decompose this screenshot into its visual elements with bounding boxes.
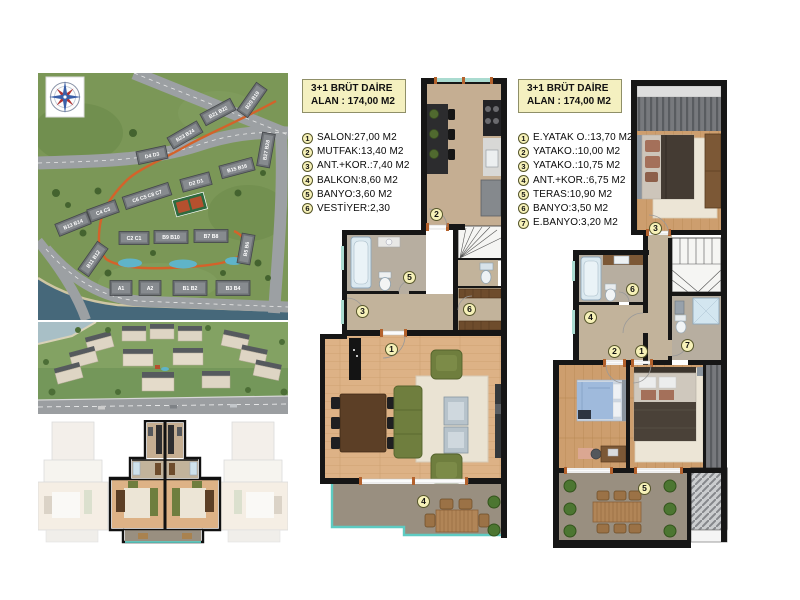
room-marker-balkon: 4 [417, 495, 430, 508]
stairs [458, 226, 503, 260]
room-number-badge: 6 [518, 203, 529, 214]
svg-text:B3 B4: B3 B4 [226, 286, 241, 292]
site-building: B9 B10 [154, 231, 188, 244]
compass-icon [46, 77, 84, 117]
room-marker-yatak2: 2 [608, 345, 621, 358]
floor-plan-b: 1 2 3 4 5 6 7 [548, 58, 733, 550]
room-number-badge: 4 [518, 175, 529, 186]
bedroom2-door [606, 361, 624, 364]
key-plan-svg [38, 420, 288, 545]
room-number-badge: 2 [302, 147, 313, 158]
brochure-page: B20 B19B21 B22B23 B24D4 D3B27 B28B15 B16… [0, 0, 800, 600]
island-plants [430, 110, 439, 159]
site-building: A1 [110, 281, 132, 296]
svg-text:C2 C1: C2 C1 [127, 236, 142, 242]
refrigerator [481, 180, 501, 216]
room-marker-banyo: 5 [403, 271, 416, 284]
room-number-badge: 5 [518, 189, 529, 200]
sofa [394, 386, 422, 458]
room-marker-eyatak: 1 [635, 345, 648, 358]
console-unit [349, 338, 361, 380]
terrace-window [636, 469, 682, 472]
hall-window [341, 300, 344, 324]
island-chairs [448, 109, 455, 160]
room-marker-antkor: 4 [584, 311, 597, 324]
stairs [672, 238, 721, 292]
site-plan-image: B20 B19B21 B22B23 B24D4 D3B27 B28B15 B16… [38, 73, 288, 320]
svg-text:A2: A2 [147, 286, 154, 292]
stove [483, 100, 501, 136]
room-number-badge: 7 [518, 218, 529, 229]
bathroom6-window [572, 261, 575, 281]
plant [488, 496, 500, 508]
kitchen-sink [486, 150, 498, 167]
key-plan-highlight [110, 421, 220, 542]
svg-text:A1: A1 [118, 286, 125, 292]
toilet [606, 289, 616, 301]
room-marker-mutfak: 2 [430, 208, 443, 221]
room-number-badge: 1 [518, 133, 529, 144]
room-number-badge: 3 [302, 161, 313, 172]
svg-text:B9 B10: B9 B10 [162, 235, 180, 241]
bathroom-window [341, 246, 344, 270]
floor-plan-a: 1 2 3 4 5 6 [320, 58, 515, 550]
plant [488, 524, 500, 536]
room-number-badge: 3 [518, 161, 529, 172]
bathtub [351, 237, 371, 288]
room-marker-ebanyo: 7 [681, 339, 694, 352]
balcony-table [436, 510, 478, 532]
room-marker-salon: 1 [385, 343, 398, 356]
vestiyer-shelf [459, 321, 501, 330]
bathroom-toilet [380, 278, 391, 291]
room-number-badge: 6 [302, 203, 313, 214]
site-building: B1 B2 [173, 281, 207, 296]
dining-table [340, 394, 386, 452]
kitchen-door [429, 225, 447, 229]
side-roof-strip [705, 365, 721, 468]
bedroom3-bed [637, 135, 694, 199]
living-door [383, 331, 405, 335]
svg-text:B1 B2: B1 B2 [183, 286, 198, 292]
ebanyo-sink [675, 301, 684, 314]
room-marker-banyo: 6 [626, 283, 639, 296]
floor-plan-b-svg [548, 58, 733, 550]
bedroom2-bed [577, 380, 626, 421]
key-plan-image [38, 420, 288, 545]
bedroom1-bed [634, 367, 705, 441]
svg-text:B7 B8: B7 B8 [204, 234, 219, 240]
room-number-badge: 2 [518, 147, 529, 158]
roof-eave [637, 86, 721, 97]
room-number-badge: 4 [302, 175, 313, 186]
room-marker-yatak3: 3 [649, 222, 662, 235]
room-marker-teras: 5 [638, 482, 651, 495]
desk-chair [591, 449, 601, 459]
floor-plan-a-svg [320, 58, 515, 550]
room-marker-hol: 3 [356, 305, 369, 318]
site-building: A2 [139, 281, 161, 296]
room-number-badge: 1 [302, 133, 313, 144]
aerial-render-svg [38, 322, 288, 414]
hall4-window [572, 310, 575, 334]
site-building: C2 C1 [119, 232, 149, 245]
room-marker-vestiyer: 6 [463, 303, 476, 316]
terrace-window [566, 469, 612, 472]
aerial-render-image [38, 322, 288, 414]
site-building: B7 B8 [194, 230, 228, 243]
room-number-badge: 5 [302, 189, 313, 200]
roof-stripes [637, 97, 721, 131]
site-building: B3 B4 [216, 281, 250, 296]
bedroom1-door [633, 361, 651, 364]
site-plan-svg: B20 B19B21 B22B23 B24D4 D3B27 B28B15 B16… [38, 73, 288, 320]
toilet [676, 321, 686, 333]
vestiyer-shelf [459, 289, 501, 298]
wc-toilet [481, 271, 491, 284]
tv-unit [495, 384, 501, 458]
